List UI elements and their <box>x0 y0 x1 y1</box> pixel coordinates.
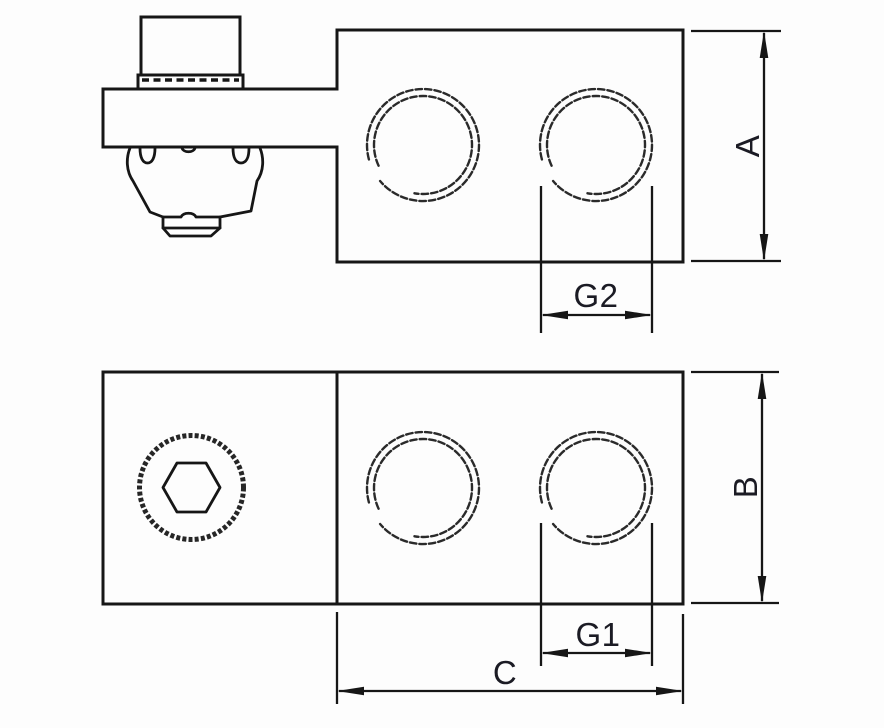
serrated-washer <box>138 75 243 89</box>
hex-socket <box>163 463 220 512</box>
dimension-c-arrow-left <box>337 687 364 696</box>
dimension-g2-label: G2 <box>573 277 618 314</box>
engineering-drawing-canvas: A G2 B <box>0 0 884 728</box>
dimension-b-arrow-down <box>758 576 767 603</box>
dimension-a: A <box>691 31 781 261</box>
bolt-assembly <box>138 17 243 89</box>
thread-hole-top-left <box>367 89 479 201</box>
spring-nut-notch-right <box>233 148 249 163</box>
hex-socket-screw <box>140 436 244 540</box>
dimension-a-arrow-up <box>760 31 769 58</box>
dimension-b: B <box>691 372 779 603</box>
dimension-g2-arrow-left <box>541 311 568 320</box>
engineering-drawing-page: A G2 B <box>0 0 884 728</box>
dimension-g2: G2 <box>541 186 652 333</box>
bottom-view <box>103 372 683 604</box>
dimension-c-label: C <box>493 654 517 691</box>
dimension-c-arrow-right <box>656 687 683 696</box>
bolt-head <box>141 17 240 75</box>
spring-nut <box>127 148 262 236</box>
dimension-b-arrow-up <box>758 372 767 399</box>
bolt-tip-bump <box>182 148 195 152</box>
spring-nut-notch-left <box>140 148 155 163</box>
dimension-c: C <box>337 612 683 704</box>
top-view <box>103 17 683 262</box>
spring-nut-body <box>127 148 262 217</box>
knurled-screw-head <box>140 436 244 540</box>
thread-hole-bottom-right <box>540 432 652 544</box>
dimension-g1-arrow-right <box>625 649 652 658</box>
bottom-view-outline <box>103 372 683 604</box>
dimension-g2-arrow-right <box>625 311 652 320</box>
spring-nut-tab <box>163 217 220 228</box>
dimension-b-label: B <box>727 476 764 499</box>
dimension-a-arrow-down <box>760 234 769 261</box>
dimension-g1-arrow-left <box>541 649 568 658</box>
dimension-g1-label: G1 <box>575 616 620 653</box>
thread-hole-top-right <box>540 89 652 201</box>
thread-hole-bottom-left <box>367 432 479 544</box>
dimension-a-label: A <box>729 135 766 158</box>
